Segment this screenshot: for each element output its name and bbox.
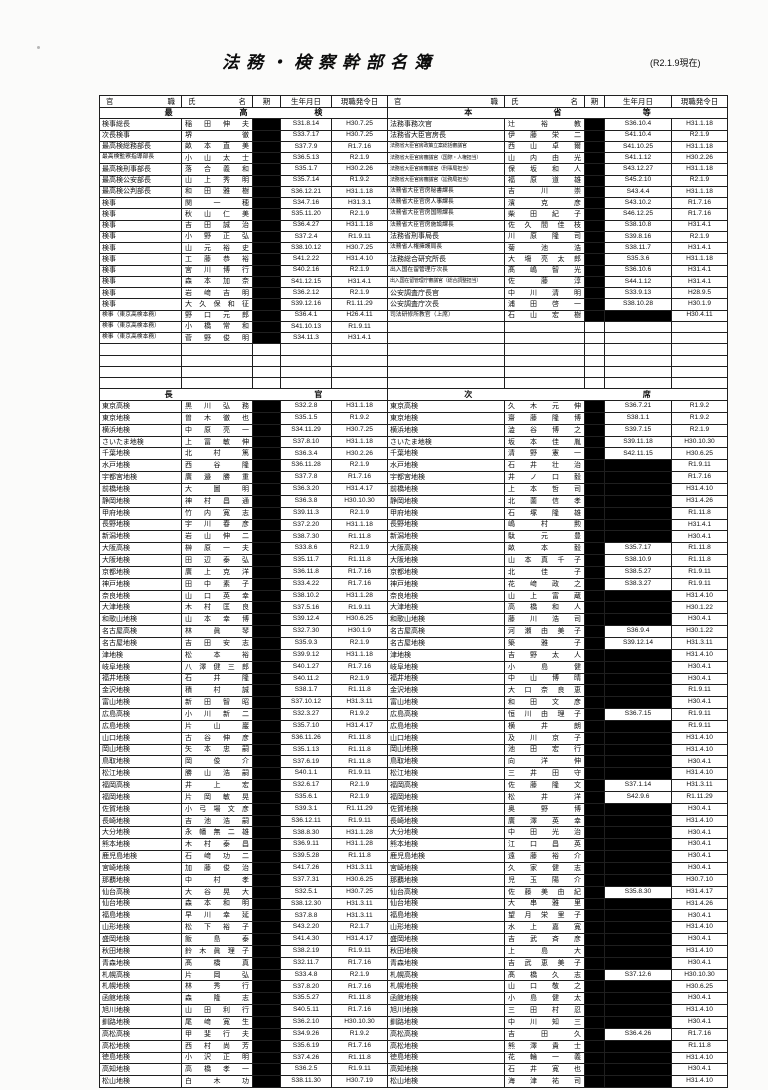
table-row: 検事大久保和征S39.12.16R1.11.29公安調査庁次長浦田啓一S38.1… [100,299,728,310]
birthdate-cell-redacted [605,507,672,519]
officer-name-cell: 和田文彦 [505,697,585,709]
appointment-date-cell: R1.9.11 [332,231,388,242]
birthdate-cell-redacted [605,310,672,321]
birthdate-cell [281,344,332,355]
job-title-cell: 大分地検 [100,827,182,839]
section-heading-label: 次席 [464,391,650,399]
officer-name-cell: 林眞琴 [182,626,253,638]
officer-name: 北薗信孝 [508,498,581,505]
officer-name-cell [505,333,585,344]
period-cell-redacted [585,130,605,141]
job-title-cell: 鹿児島地検 [388,851,505,863]
birthdate-cell-redacted [605,1052,672,1064]
period-cell-redacted [253,685,281,697]
officer-name: 森本加奈 [185,278,249,285]
officer-name: 木村泰昌 [185,841,249,848]
officer-name-cell: 森本加奈 [182,276,253,287]
period-cell-redacted [253,164,281,175]
officer-name-cell: 藤川浩司 [505,614,585,626]
birthdate-cell: S41.10.13 [281,321,332,332]
birthdate-cell: S33.9.13 [605,288,672,299]
birthdate-cell-redacted [605,1064,672,1076]
period-cell-redacted [253,720,281,732]
appointment-date-cell: H30.4.1 [672,910,728,922]
job-title-cell: 秋田地検 [388,945,505,957]
officer-name: 及川京子 [508,735,581,742]
job-title-cell [388,321,505,332]
table-row: 那覇地検中村孝S37.7.31H30.6.25那覇地検児玉陽介H30.7.10 [100,874,728,886]
period-cell [253,378,281,389]
officer-name: 奥野博 [508,806,581,813]
appointment-date-cell: R1.7.16 [332,957,388,969]
officer-name: 佐藤美由紀 [508,889,581,896]
period-cell-redacted [253,614,281,626]
period-cell-redacted [585,957,605,969]
officer-name: 石山宏樹 [508,312,581,319]
table-row: 次長検事堺徹S33.7.17H30.7.25法務省大臣官房長伊藤栄二S41.10… [100,130,728,141]
officer-name: 稲田伸夫 [185,121,249,128]
birthdate-cell: S37.6.19 [281,756,332,768]
table-row: 高知地検高橋孝一S36.2.5R1.9.11高知地検石井寛也H30.4.1 [100,1064,728,1076]
job-title-cell: 徳島地検 [100,1052,182,1064]
officer-name: 中山博晴 [508,675,581,682]
job-title-cell: 広島地検 [100,720,182,732]
officer-name-cell: 田辺泰弘 [182,555,253,567]
officer-name: 山上富蔵 [508,593,581,600]
job-title-cell: 大分地検 [388,827,505,839]
officer-name: 山口敬之 [508,983,581,990]
birthdate-cell: S38.3.27 [605,578,672,590]
period-cell-redacted [253,555,281,567]
job-title-cell: 富山地検 [388,697,505,709]
table-row: 秋田地検鈴木眞理子S38.2.19R1.9.11秋田地検上島大H31.4.10 [100,945,728,957]
period-cell-redacted [253,519,281,531]
birthdate-cell: S38.10.28 [605,299,672,310]
period-cell-redacted [253,198,281,209]
officer-name: 小島健太 [508,995,581,1002]
birthdate-cell-redacted [605,519,672,531]
officer-name: 大塲亮太郎 [508,256,581,263]
officer-name: 木村匡良 [185,604,249,611]
officer-name: 大串雅里 [508,900,581,907]
table-row: 札幌地検林秀行S37.8.20R1.7.16札幌地検山口敬之H30.6.25 [100,981,728,993]
officer-name-cell [182,355,253,366]
officer-name-cell: 松本裕 [182,649,253,661]
period-cell-redacted [253,626,281,638]
officer-name-cell: 宇川春彦 [182,519,253,531]
appointment-date-cell: R1.11.8 [332,756,388,768]
job-title-cell: 山形地検 [388,922,505,934]
officer-name-cell: 辻裕教 [505,119,585,130]
birthdate-cell: S36.12.11 [281,815,332,827]
birthdate-cell-redacted [605,957,672,969]
officer-name: 畝本直美 [185,143,249,150]
appointment-date-cell [332,378,388,389]
birthdate-cell: S36.5.13 [281,153,332,164]
job-title-cell: 法務省大臣官房秘書課長 [388,186,505,197]
officer-name-cell: 髙橋真 [182,957,253,969]
birthdate-cell: S37.7.9 [281,141,332,152]
job-title-cell: 名古屋高検 [388,626,505,638]
birthdate-cell: S38.10.2 [281,590,332,602]
appointment-date-cell: H31.1.18 [672,164,728,175]
officer-name: 吉武恵美子 [508,960,581,967]
job-title-cell [100,344,182,355]
officer-name: 八澤健三郎 [185,664,249,671]
table-row: 岡山地検矢本忠嗣S35.1.13R1.11.8岡山地検池田宏行H31.4.10 [100,744,728,756]
birthdate-cell-redacted [605,993,672,1005]
period-cell-redacted [253,661,281,673]
job-title-cell: 松山地検 [100,1076,182,1088]
officer-name-cell [505,321,585,332]
officer-name-cell: 秋山仁美 [182,209,253,220]
appointment-date-cell: H31.1.18 [332,220,388,231]
officer-name-cell: 上本哲司 [505,484,585,496]
job-title-cell: 岡山地検 [388,744,505,756]
birthdate-cell-redacted [605,756,672,768]
period-cell-redacted [585,673,605,685]
birthdate-cell: S40.2.16 [281,265,332,276]
officer-name: 河瀬由美子 [508,628,581,635]
appointment-date-cell: H31.4.1 [672,220,728,231]
officer-name-cell: 山口英幸 [182,590,253,602]
officer-name-cell: 吉田久 [505,1028,585,1040]
officer-name-cell: 中村孝 [182,874,253,886]
table-row: 高松地検西村尚芳S35.6.19R1.7.16高松地検熊澤貴士R1.11.8 [100,1040,728,1052]
appointment-date-cell: H30.7.25 [332,886,388,898]
appointment-date-cell: H31.4.10 [672,590,728,602]
officer-name-cell: 石井寛也 [505,1064,585,1076]
appointment-date-cell: H30.4.1 [672,803,728,815]
officer-name-cell: 井ノ口毅 [505,472,585,484]
appointment-date-cell: H31.4.1 [332,276,388,287]
officer-name-cell: 山上秀明 [182,175,253,186]
job-title-cell: 横浜地検 [100,424,182,436]
appointment-date-cell: R2.1.9 [332,507,388,519]
period-cell-redacted [585,1076,605,1088]
period-cell-redacted [253,288,281,299]
officer-name-cell [182,366,253,377]
officer-name: 石井寛也 [508,1066,581,1073]
job-title-cell: 札幌地検 [100,981,182,993]
job-title-cell: 法務省大臣官房審議官（国際・人権担当） [388,153,505,164]
appointment-date-cell: R1.9.11 [332,945,388,957]
officer-name: 池田宏行 [508,746,581,753]
officer-name-cell: 矢本忠嗣 [182,744,253,756]
officer-name: 齋藤隆博 [508,415,581,422]
appointment-date-cell: H30.4.1 [672,863,728,875]
job-title-cell: 福井地検 [388,673,505,685]
appointment-date-cell: R1.11.8 [332,1052,388,1064]
birthdate-cell: S43.12.27 [605,164,672,175]
officer-name-cell: 宮川博行 [182,265,253,276]
appointment-date-cell: R1.11.8 [672,555,728,567]
job-title-cell: 検事 [100,220,182,231]
birthdate-cell: S38.11.30 [281,1076,332,1088]
officer-name-cell: 花輪一義 [505,1052,585,1064]
birthdate-cell: S36.10.4 [605,119,672,130]
officer-name-cell: 永幡無二雄 [182,827,253,839]
birthdate-cell: S36.10.6 [605,265,672,276]
appointment-date-cell: H31.4.26 [672,495,728,507]
officer-name-cell: 松下裕子 [182,922,253,934]
officer-name-cell: 井上宏 [182,780,253,792]
birthdate-cell-redacted [605,673,672,685]
table-row: さいたま地検上冨敏伸S37.8.10H31.1.18さいたま地検坂本佳胤S39.… [100,436,728,448]
appointment-date-cell [672,344,728,355]
officer-name: 松井洋 [508,794,581,801]
appointment-date-cell: R1.11.8 [332,732,388,744]
job-title-cell: 高松地検 [388,1040,505,1052]
job-title-cell: 法務省大臣官房審議官（刑事局担当） [388,164,505,175]
job-title-cell: 検事 [100,265,182,276]
birthdate-cell-redacted [605,460,672,472]
officer-name: 江口昌英 [508,841,581,848]
appointment-date-cell: H30.4.1 [672,756,728,768]
appointment-date-cell: H30.10.30 [672,436,728,448]
officer-name-cell: 江口昌英 [505,839,585,851]
birthdate-cell-redacted [605,590,672,602]
officer-name: 大口奈良恵 [508,687,581,694]
col-header-right-2: 期 [585,96,605,108]
table-row: 盛岡地検飯島泰S41.4.30H31.4.17盛岡地検吉武斉彦H30.4.1 [100,934,728,946]
appointment-date-cell: R1.9.11 [672,685,728,697]
officer-name-cell: 遠藤裕介 [505,851,585,863]
officer-name-cell: 菅野俊明 [182,333,253,344]
officer-name-cell: 吉武恵美子 [505,957,585,969]
officer-name-cell: 澁谷博之 [505,424,585,436]
birthdate-cell: S35.5.27 [281,993,332,1005]
birthdate-cell: S39.11.18 [605,436,672,448]
birthdate-cell [605,333,672,344]
birthdate-cell: S40.5.11 [281,1005,332,1017]
officer-name: 望月栄里子 [508,912,581,919]
period-cell-redacted [585,874,605,886]
period-cell-redacted [585,1052,605,1064]
appointment-date-cell: H30.4.1 [672,697,728,709]
section-heading-right: 本省等 [388,108,728,119]
job-title-cell: 熊本地検 [388,839,505,851]
birthdate-cell: S38.7.30 [281,531,332,543]
section-heading-label: 長官 [165,391,323,399]
job-title-cell: 山形地検 [100,922,182,934]
birthdate-cell: S36.3.4 [281,448,332,460]
appointment-date-cell: H30.6.25 [672,981,728,993]
officer-name: 児玉陽介 [508,877,581,884]
table-row: 横浜地検中原亮一S34.11.29H30.7.25横浜地検澁谷博之S39.7.1… [100,424,728,436]
birthdate-cell: S39.12.4 [281,614,332,626]
birthdate-cell [605,344,672,355]
appointment-date-cell: R1.9.2 [332,175,388,186]
officer-name-cell: 吉川崇 [505,186,585,197]
job-title-cell: 名古屋地検 [100,637,182,649]
job-title-cell: さいたま地検 [100,436,182,448]
birthdate-cell: S34.9.26 [281,1028,332,1040]
period-cell-redacted [253,507,281,519]
appointment-date-cell: R1.11.8 [332,531,388,543]
table-row: 東京地検曽木徹也S35.1.5R1.9.2東京地検齋藤隆博S38.1.1R1.9… [100,412,728,424]
period-cell-redacted [253,1040,281,1052]
officer-name: 早川幸延 [185,912,249,919]
table-row: 福井地検石井隆S40.11.2R2.1.9福井地検中山博晴H30.4.1 [100,673,728,685]
job-title-cell: 大津地検 [388,602,505,614]
table-row: 検事（東京高検本務）野口元郎S36.4.1H26.4.11司法研修所教官（上席）… [100,310,728,321]
appointment-date-cell: R1.7.16 [332,1005,388,1017]
job-title-cell: 津地検 [100,649,182,661]
period-cell-redacted [253,1052,281,1064]
officer-name-cell: 廣上克洋 [182,566,253,578]
officer-name-cell: 水上嘉寛 [505,922,585,934]
job-title-cell: 金沢地検 [100,685,182,697]
birthdate-cell: S35.1.13 [281,744,332,756]
appointment-date-cell: H30.7.25 [332,130,388,141]
period-cell-redacted [253,957,281,969]
appointment-date-cell: H30.7.25 [332,119,388,130]
officer-name-cell: 吉田安志 [182,637,253,649]
job-title-cell: 長野地検 [100,519,182,531]
birthdate-cell-redacted [605,922,672,934]
job-title-cell: 千葉地検 [100,448,182,460]
period-cell-redacted [253,827,281,839]
officer-name-cell: 三井田守 [505,768,585,780]
appointment-date-cell: H30.4.1 [672,1064,728,1076]
job-title-cell: 福島地検 [100,910,182,922]
appointment-date-cell: R1.7.16 [672,198,728,209]
appointment-date-cell: R1.7.16 [332,578,388,590]
officer-name-cell: 恒川由理子 [505,709,585,721]
table-row: 札幌高検片岡弘S33.4.8R2.1.9札幌高検髙橋久志S37.12.6H30.… [100,969,728,981]
appointment-date-cell [672,366,728,377]
job-title-cell: 東京地検 [100,412,182,424]
job-title-cell: 法務総合研究所長 [388,254,505,265]
officer-name: 伊藤栄二 [508,132,581,139]
officer-name-cell: 北佳子 [505,566,585,578]
officer-name: 井上宏 [185,782,249,789]
officer-name-cell: 向洋伸 [505,756,585,768]
appointment-date-cell: R2.1.9 [332,209,388,220]
officer-name: 中原亮一 [185,427,249,434]
job-title-cell: 法務省大臣官房政策立案総括審議官 [388,141,505,152]
table-row: 徳島地検小沢正明S37.4.26R1.11.8徳島地検花輪一義H31.4.10 [100,1052,728,1064]
officer-name: 甲斐行夫 [185,1031,249,1038]
appointment-date-cell: H30.4.1 [672,827,728,839]
period-cell-redacted [253,186,281,197]
period-cell-redacted [253,732,281,744]
col-header-label: 官職 [388,98,504,106]
job-title-cell: 岡山地検 [100,744,182,756]
birthdate-cell: S32.5.1 [281,886,332,898]
table-row: 検事（東京高検本務）小橋常和S41.10.13R1.9.11 [100,321,728,332]
job-title-cell: 京都地検 [388,566,505,578]
officer-name-cell: 尾﨑寛生 [182,1016,253,1028]
officer-name: 佐久間佳枝 [508,222,581,229]
period-cell-redacted [253,697,281,709]
officer-name-cell: 濱克彦 [505,198,585,209]
officer-name: 海津祐司 [508,1078,581,1085]
appointment-date-cell: R1.9.2 [672,412,728,424]
period-cell-redacted [253,649,281,661]
officer-name-cell: 山本真千子 [505,555,585,567]
officer-name: 山田利行 [185,1007,249,1014]
officer-name-cell: 小島健太 [505,993,585,1005]
job-title-cell: 大阪高検 [100,543,182,555]
period-cell-redacted [585,507,605,519]
officer-name: 川原隆司 [508,233,581,240]
officer-name-cell: 小野正弘 [182,231,253,242]
appointment-date-cell: R1.11.8 [672,1040,728,1052]
period-cell-redacted [585,209,605,220]
appointment-date-cell: H30.1.9 [332,626,388,638]
period-cell-redacted [585,578,605,590]
appointment-date-cell: R1.9.11 [672,709,728,721]
appointment-date-cell: H30.7.25 [332,243,388,254]
period-cell-redacted [253,1064,281,1076]
appointment-date-cell: H31.1.18 [672,254,728,265]
birthdate-cell: S36.9.11 [281,839,332,851]
period-cell-redacted [253,590,281,602]
birthdate-cell: S35.1.5 [281,412,332,424]
appointment-date-cell: H30.4.11 [672,310,728,321]
period-cell-redacted [253,531,281,543]
officer-name-cell: 伊藤栄二 [505,130,585,141]
officer-name-cell: 山上富蔵 [505,590,585,602]
job-title-cell: 検事（東京高検本務） [100,310,182,321]
officer-name: 北村篤 [185,450,249,457]
job-title-cell: 福岡高検 [388,780,505,792]
table-row: 松江地検勝山浩嗣S40.1.1R1.9.11松江地検三井田守H31.4.10 [100,768,728,780]
period-cell-redacted [253,299,281,310]
job-title-cell: 岐阜地検 [388,661,505,673]
table-row: 大阪地検田辺泰弘S35.11.7R1.11.8大阪地検山本真千子S38.10.9… [100,555,728,567]
job-title-cell: 盛岡地検 [100,934,182,946]
birthdate-cell-redacted [605,1040,672,1052]
officer-name: 横井朗 [508,723,581,730]
birthdate-cell-redacted [605,898,672,910]
appointment-date-cell: R1.11.29 [672,791,728,803]
birthdate-cell: S38.12.30 [281,898,332,910]
officer-name-cell: 片山巖 [182,720,253,732]
table-row: 広島地検片山巖S35.7.10H31.4.17広島地検横井朗R1.9.11 [100,720,728,732]
birthdate-cell-redacted [605,472,672,484]
officer-name: 吉武斉彦 [508,936,581,943]
period-cell [585,344,605,355]
appointment-date-cell: H31.4.26 [672,898,728,910]
period-cell-redacted [253,874,281,886]
birthdate-cell: S41.12.15 [281,276,332,287]
job-title-cell [100,366,182,377]
table-row: 長野地検宇川春彦S37.2.20H31.1.18長野地検嶋村勲H31.4.1 [100,519,728,531]
table-row: 千葉地検北村篤S36.3.4H30.2.26千葉地検清野憲一S42.11.15H… [100,448,728,460]
birthdate-cell: S41.2.22 [281,254,332,265]
job-title-cell: 司法研修所教官（上席） [388,310,505,321]
birthdate-cell: S37.4.26 [281,1052,332,1064]
job-title-cell: 公安調査庁長官 [388,288,505,299]
officer-name: 永幡無二雄 [185,829,249,836]
birthdate-cell: S37.5.16 [281,602,332,614]
officer-name: 小沢正明 [185,1054,249,1061]
section-heading-label: 本省等 [464,109,650,117]
officer-name-cell: 山田利行 [182,1005,253,1017]
table-row: 鹿児島地検石﨑功二S39.5.28R1.11.8鹿児島地検遠藤裕介H30.4.1 [100,851,728,863]
officer-name: 花輪一義 [508,1054,581,1061]
period-cell-redacted [253,922,281,934]
col-header-right-4: 現職発令日 [672,96,728,108]
job-title-cell: 宇都宮地検 [100,472,182,484]
job-title-cell: 札幌地検 [388,981,505,993]
officer-name-cell: 八澤健三郎 [182,661,253,673]
period-cell-redacted [253,141,281,152]
officer-name-cell: 神村昌通 [182,495,253,507]
